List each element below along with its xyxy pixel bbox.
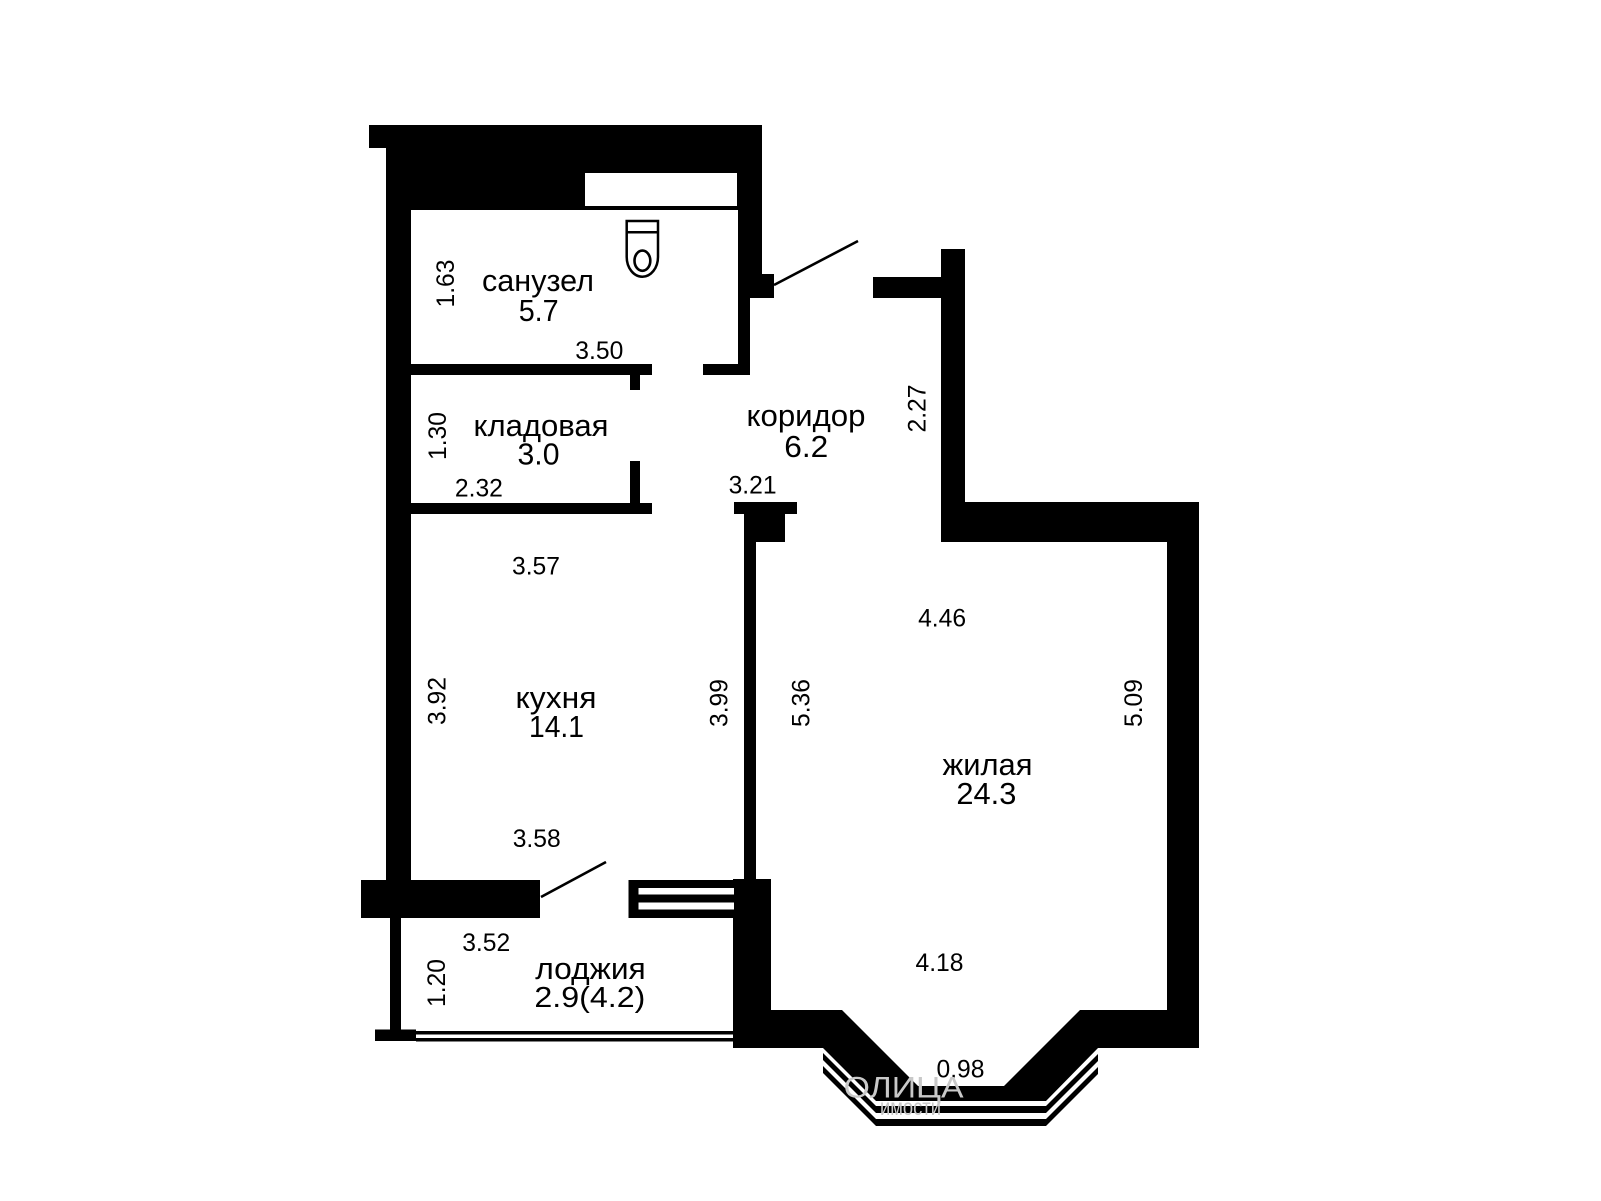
svg-text:5.36: 5.36 — [788, 679, 816, 727]
svg-text:3.52: 3.52 — [462, 929, 510, 957]
svg-text:1.63: 1.63 — [432, 260, 460, 308]
svg-text:1.30: 1.30 — [424, 412, 452, 460]
svg-text:24.3: 24.3 — [956, 776, 1016, 811]
svg-text:14.1: 14.1 — [529, 709, 584, 744]
svg-text:3.50: 3.50 — [575, 337, 623, 365]
svg-text:1.20: 1.20 — [423, 959, 451, 1007]
svg-text:имости: имости — [880, 1094, 941, 1120]
svg-text:4.46: 4.46 — [918, 604, 966, 632]
svg-text:3.57: 3.57 — [512, 553, 560, 581]
svg-text:4.18: 4.18 — [916, 949, 964, 977]
svg-text:лоджия: лоджия — [535, 951, 646, 986]
svg-text:6.2: 6.2 — [784, 429, 828, 464]
svg-text:3.58: 3.58 — [513, 825, 561, 853]
svg-text:2.9(4.2): 2.9(4.2) — [534, 982, 645, 1014]
svg-text:коридор: коридор — [747, 398, 866, 433]
svg-text:3.21: 3.21 — [729, 472, 777, 500]
svg-text:3.99: 3.99 — [706, 679, 734, 727]
svg-text:2.32: 2.32 — [455, 475, 503, 503]
svg-text:3.92: 3.92 — [424, 677, 452, 725]
svg-text:3.0: 3.0 — [518, 437, 560, 472]
svg-text:5.09: 5.09 — [1120, 679, 1148, 727]
svg-text:5.7: 5.7 — [519, 293, 559, 328]
svg-text:2.27: 2.27 — [904, 385, 932, 433]
